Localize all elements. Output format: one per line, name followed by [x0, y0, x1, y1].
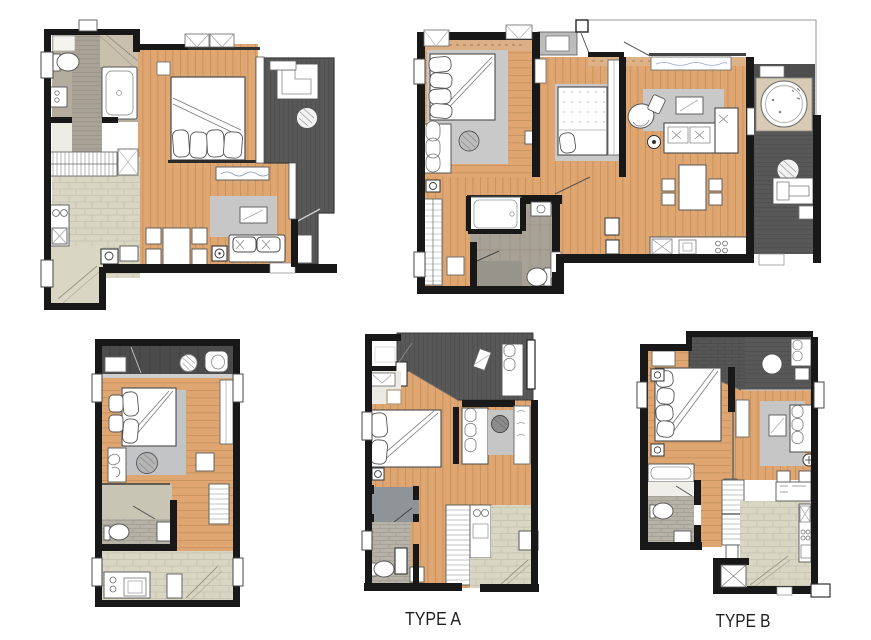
svg-text:TYPE A: TYPE A	[405, 608, 462, 629]
svg-text:TYPE B: TYPE B	[716, 610, 771, 631]
